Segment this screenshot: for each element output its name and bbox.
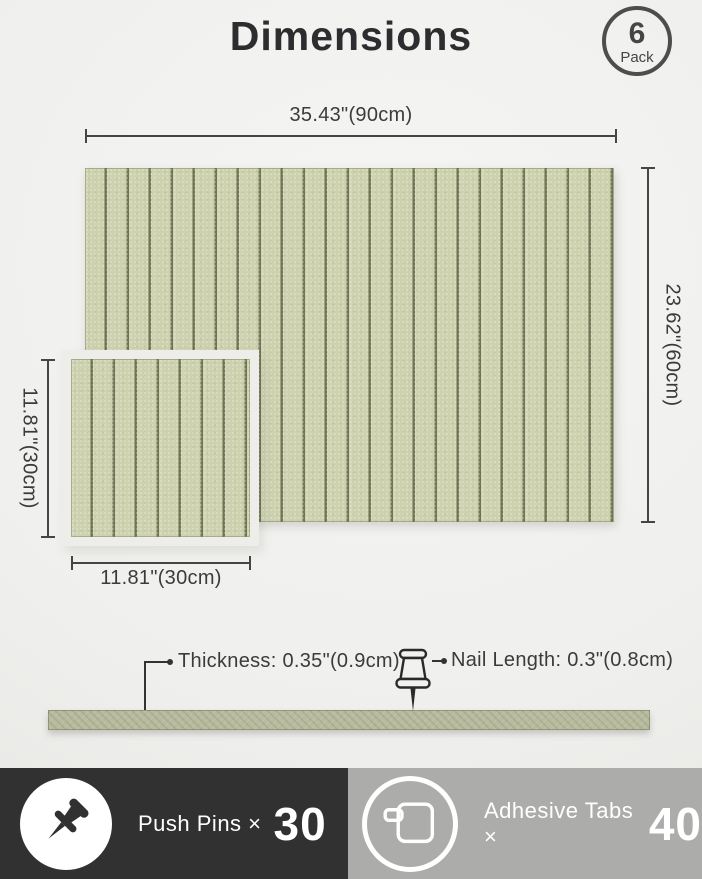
pack-count-number: 6 (629, 19, 646, 49)
adhesive-tab-icon (379, 793, 441, 855)
small-panel-width-dimension-line (72, 562, 250, 564)
large-panel-height-label: 23.62"(60cm) (661, 284, 684, 407)
push-pins-section: Push Pins × 30 (0, 768, 348, 879)
nail-leader-dot (441, 658, 447, 664)
adhesive-tabs-label: Adhesive Tabs × (484, 798, 637, 850)
small-panel-width-label: 11.81"(30cm) (72, 567, 250, 590)
small-panel-height-label: 11.81"(30cm) (18, 387, 41, 509)
large-panel-width-dimension-line (86, 135, 616, 137)
dimension-tick (41, 359, 55, 361)
dimension-tick (615, 129, 617, 143)
product-dimensions-infographic: Dimensions 6 Pack 35.43"(90cm) 23.62"(60… (0, 0, 702, 879)
small-felt-panel (71, 359, 250, 537)
nail-length-label: Nail Length: 0.3"(0.8cm) (451, 649, 673, 672)
thickness-leader-line (144, 661, 168, 663)
adhesive-tabs-section: Adhesive Tabs × 40 (348, 768, 702, 879)
contents-footer-bar: Push Pins × 30 Adhesive Tabs × 40 (0, 768, 702, 879)
dimension-tick (85, 129, 87, 143)
adhesive-tabs-count: 40 (649, 797, 702, 851)
push-pin-icon (37, 795, 95, 853)
pack-count-label: Pack (620, 50, 653, 65)
dimension-tick (41, 536, 55, 538)
large-panel-height-dimension-line (647, 168, 649, 522)
panel-side-view-strip (48, 710, 650, 730)
small-panel-height-dimension-line (47, 360, 49, 537)
pack-count-badge: 6 Pack (602, 6, 672, 76)
large-panel-width-label: 35.43"(90cm) (86, 104, 616, 127)
thickness-leader-dot (167, 659, 173, 665)
thickness-label: Thickness: 0.35"(0.9cm) (178, 650, 400, 673)
dimension-tick (641, 167, 655, 169)
push-pins-count: 30 (274, 797, 327, 851)
page-title: Dimensions (0, 13, 702, 60)
dimension-tick (641, 521, 655, 523)
push-pin-outline-icon (394, 648, 432, 712)
adhesive-tab-icon-circle (362, 776, 458, 872)
push-pin-icon-circle (20, 778, 112, 870)
push-pins-label: Push Pins × (138, 811, 262, 837)
